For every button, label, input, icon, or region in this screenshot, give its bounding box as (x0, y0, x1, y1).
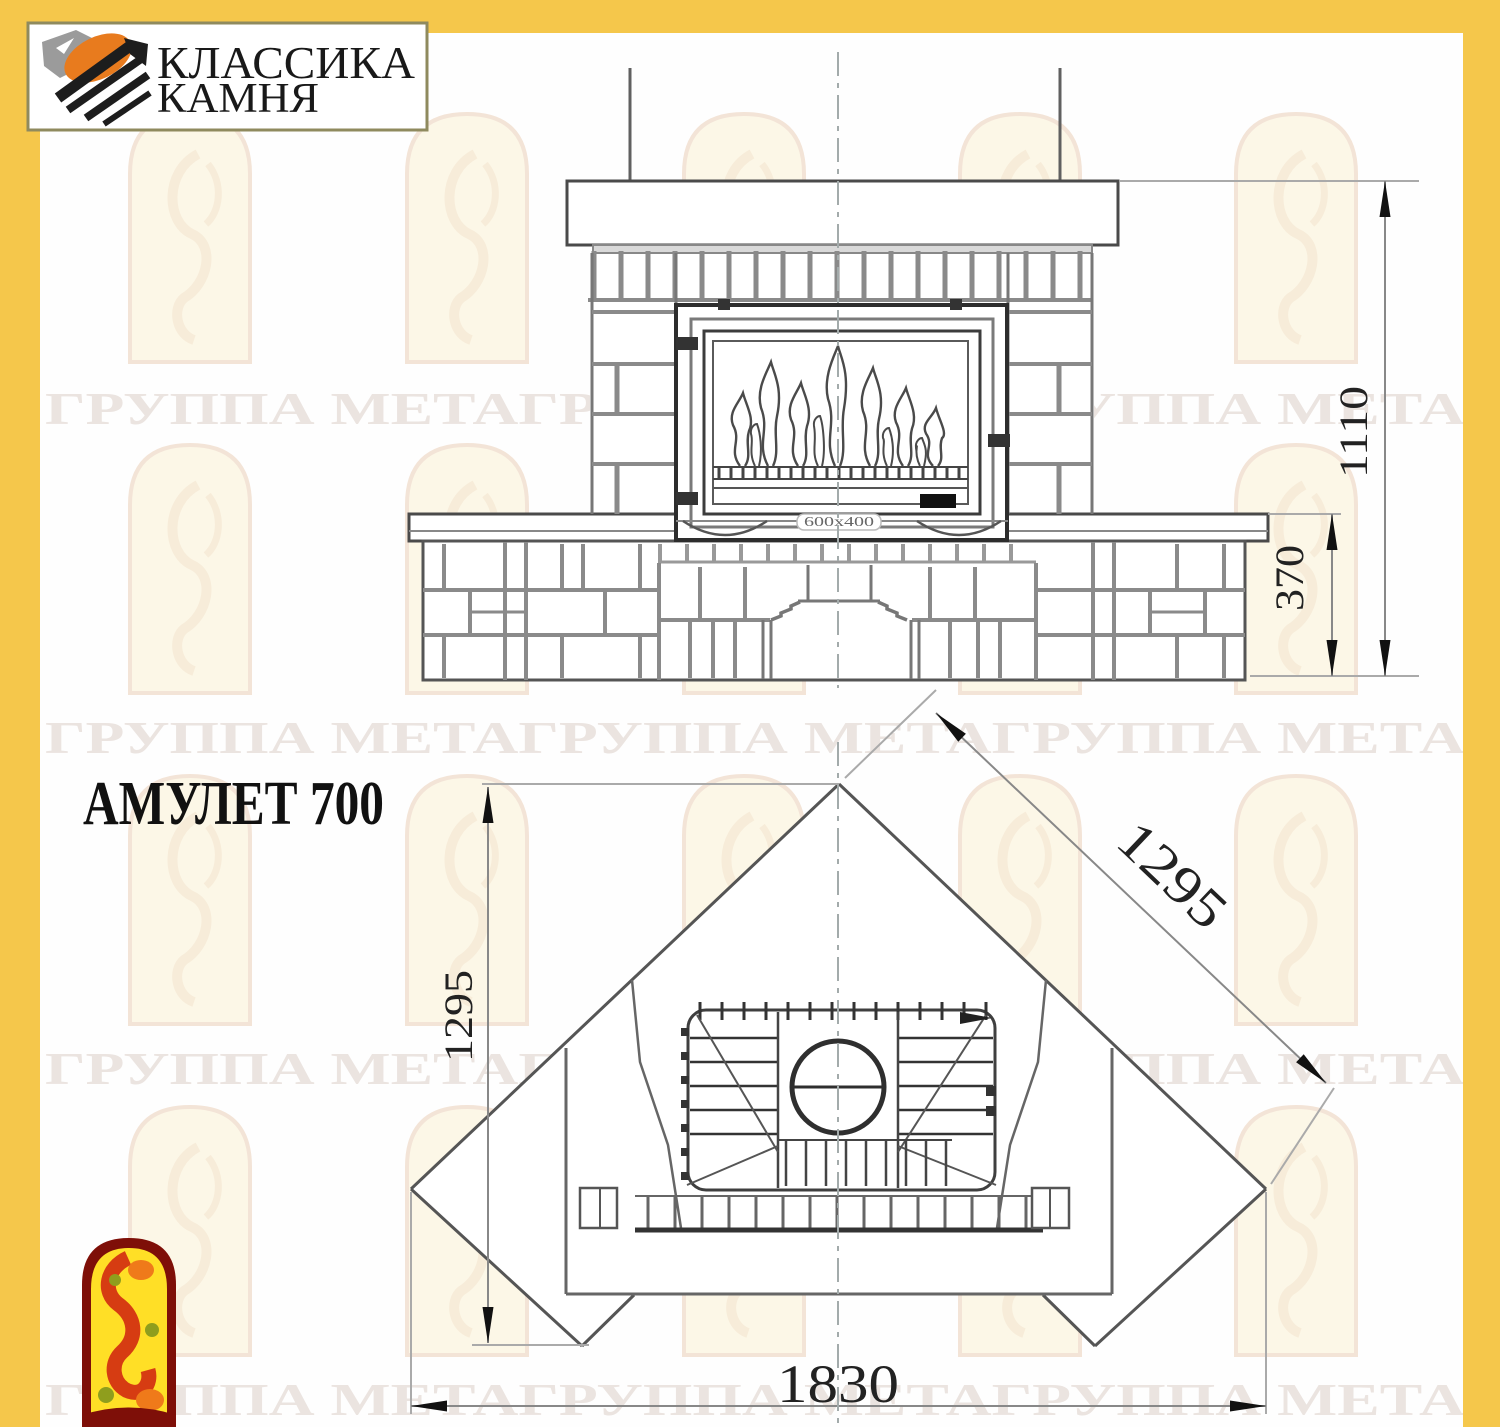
svg-text:1110: 1110 (1331, 386, 1376, 478)
svg-text:ГРУППА МЕТАГРУППА МЕТАГРУППА М: ГРУППА МЕТАГРУППА МЕТАГРУППА МЕТА (45, 1374, 1465, 1425)
svg-text:ГРУППА МЕТАГРУППА МЕТАГРУППА М: ГРУППА МЕТАГРУППА МЕТАГРУППА МЕТА (45, 712, 1465, 763)
svg-text:370: 370 (1267, 545, 1312, 611)
svg-text:КАМНЯ: КАМНЯ (157, 76, 319, 122)
svg-text:1295: 1295 (436, 970, 481, 1062)
svg-text:АМУЛЕТ 700: АМУЛЕТ 700 (83, 770, 384, 838)
svg-text:1295: 1295 (1105, 809, 1239, 941)
